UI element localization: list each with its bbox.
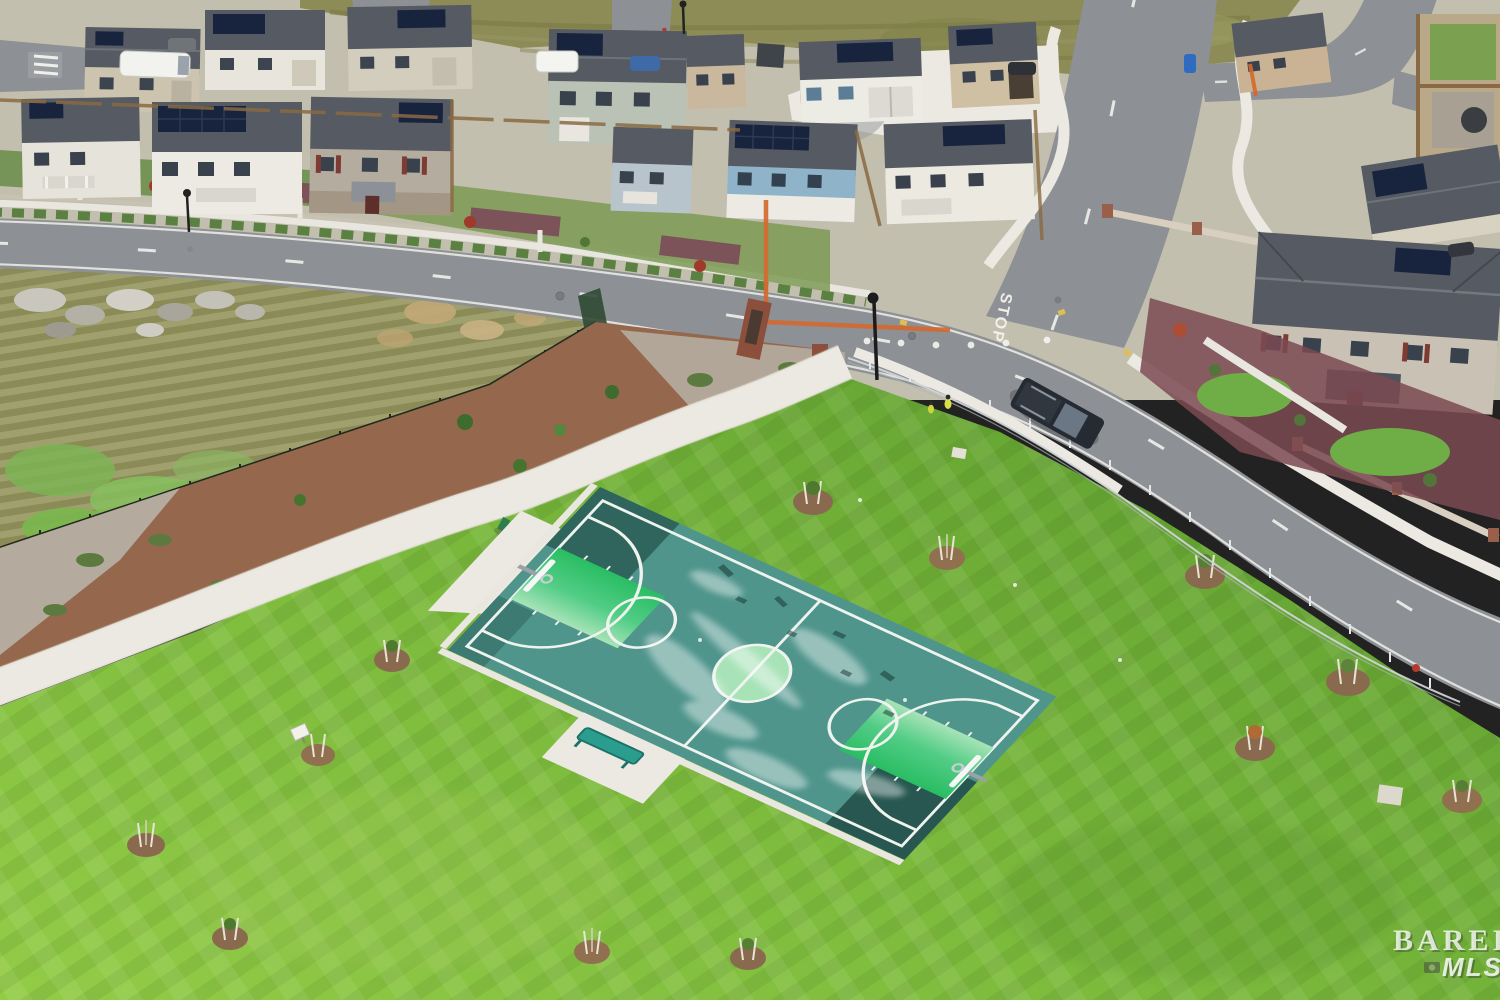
- house: [347, 5, 472, 91]
- house: [884, 119, 1035, 224]
- fire-hydrant: [1412, 664, 1420, 672]
- backyards: [1418, 14, 1500, 168]
- house: [686, 34, 747, 109]
- house: [205, 10, 325, 90]
- house: [726, 120, 857, 222]
- house: [611, 127, 694, 214]
- dark-suv: [1008, 62, 1036, 75]
- gazebo: [756, 43, 785, 68]
- white-van: [536, 51, 578, 72]
- aerial-photo: STOP: [0, 0, 1500, 1000]
- house: [799, 38, 924, 124]
- gray-car: [168, 38, 196, 52]
- camera-icon: [1424, 962, 1440, 973]
- utility-pad: [1377, 784, 1403, 805]
- white-sprinter-van: [120, 51, 191, 78]
- watermark-line2: MLS: [1442, 952, 1500, 982]
- house: [152, 102, 302, 214]
- house: [1231, 13, 1331, 94]
- house: [21, 97, 141, 199]
- blue-car: [1184, 54, 1196, 73]
- blue-pickup: [630, 56, 660, 71]
